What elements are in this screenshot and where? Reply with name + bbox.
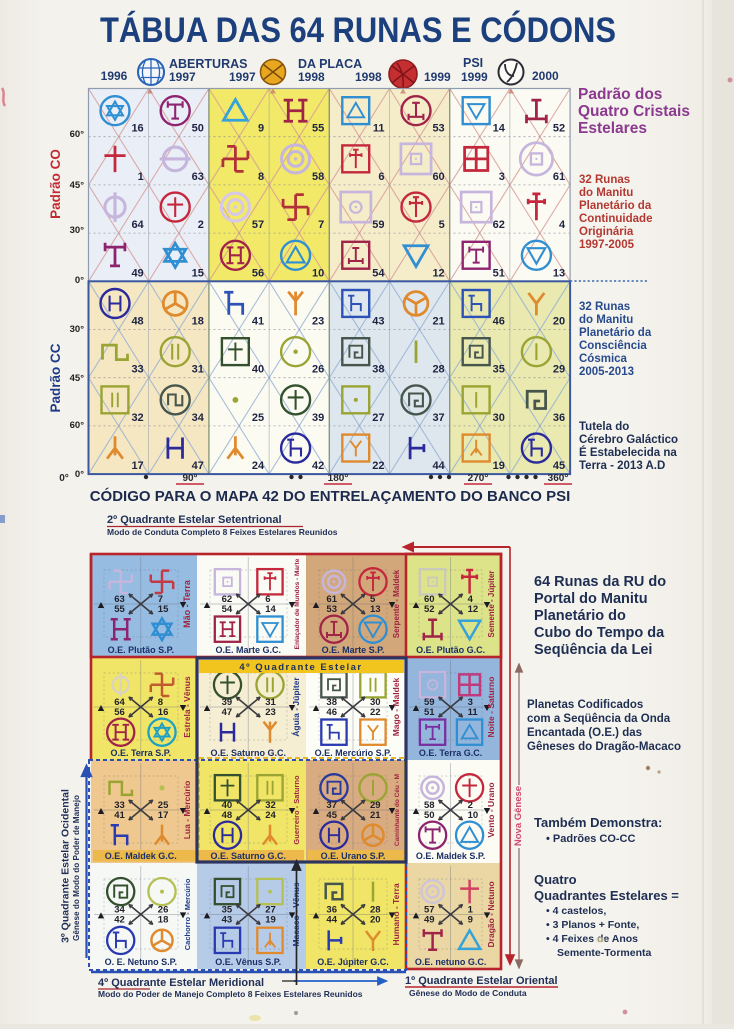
svg-text:43: 43 [222, 914, 233, 925]
svg-text:Mago - Maldek: Mago - Maldek [391, 677, 401, 736]
svg-text:24: 24 [252, 460, 265, 472]
svg-text:O.E. Urano S.P.: O.E. Urano S.P. [321, 851, 386, 861]
svg-text:7: 7 [318, 219, 324, 231]
svg-text:O.E. Terra S.P.: O.E. Terra S.P. [110, 748, 171, 758]
svg-text:64: 64 [131, 219, 144, 231]
svg-text:Modo de Conduta Completo 8 Fei: Modo de Conduta Completo 8 Feixes Estela… [107, 527, 338, 537]
svg-text:35: 35 [493, 364, 505, 376]
svg-text:45: 45 [553, 460, 565, 472]
svg-text:20: 20 [370, 914, 381, 925]
svg-text:22: 22 [370, 707, 381, 718]
svg-text:1997: 1997 [229, 70, 256, 84]
svg-text:O.E. Maldek G.C.: O.E. Maldek G.C. [105, 851, 177, 861]
svg-text:360°: 360° [548, 473, 569, 484]
svg-text:16: 16 [131, 123, 143, 135]
svg-text:30°: 30° [70, 225, 85, 236]
svg-text:36: 36 [553, 412, 565, 424]
svg-text:Cachorro - Mercúrio: Cachorro - Mercúrio [183, 878, 192, 950]
svg-text:O.E. Júpiter G.C.: O.E. Júpiter G.C. [317, 957, 389, 967]
svg-text:47: 47 [222, 707, 233, 718]
svg-text:30°: 30° [70, 324, 85, 335]
svg-text:49: 49 [131, 267, 143, 279]
svg-text:19: 19 [265, 914, 276, 925]
svg-text:Guerreiro - Saturno: Guerreiro - Saturno [292, 775, 301, 845]
svg-text:O.E. Saturno G.C.: O.E. Saturno G.C. [210, 748, 286, 758]
svg-text:40: 40 [252, 364, 264, 376]
svg-text:3: 3 [499, 171, 505, 183]
svg-text:12: 12 [432, 267, 444, 279]
svg-text:44: 44 [326, 914, 337, 925]
svg-text:11: 11 [373, 123, 385, 135]
svg-text:1º Quadrante Estelar Oriental: 1º Quadrante Estelar Oriental [405, 975, 558, 987]
svg-text:TÁBUA DAS 64 RUNAS E CÓDONS: TÁBUA DAS 64 RUNAS E CÓDONS [100, 10, 616, 50]
svg-text:Gênese do Modo do Poder de Man: Gênese do Modo do Poder de Manejo [72, 795, 81, 941]
svg-text:1998: 1998 [355, 70, 382, 84]
svg-text:Vento - Urano: Vento - Urano [486, 782, 496, 837]
svg-text:32: 32 [131, 412, 143, 424]
svg-text:23: 23 [265, 707, 276, 718]
svg-text:2000: 2000 [532, 69, 559, 83]
svg-text:O.E. netuno G.C.: O.E. netuno G.C. [415, 957, 487, 967]
svg-text:1997: 1997 [169, 70, 196, 84]
svg-text:Semente - Júpiter: Semente - Júpiter [487, 570, 496, 637]
svg-text:Padrão CO: Padrão CO [48, 149, 63, 219]
svg-text:Modo do Poder de Manejo Comple: Modo do Poder de Manejo Completo 8 Feixe… [98, 989, 363, 999]
svg-text:Estrela - Vênus: Estrela - Vênus [182, 676, 192, 738]
svg-text:42: 42 [114, 914, 125, 925]
svg-text:22: 22 [372, 460, 384, 472]
svg-text:4º Quadrante Estelar: 4º Quadrante Estelar [239, 662, 362, 673]
svg-text:63: 63 [192, 171, 204, 183]
svg-text:21: 21 [370, 810, 381, 821]
svg-text:9: 9 [468, 914, 473, 925]
svg-text:6: 6 [378, 171, 384, 183]
svg-text:11: 11 [468, 707, 479, 718]
svg-text:49: 49 [424, 914, 435, 925]
svg-text:50: 50 [424, 810, 435, 821]
svg-text:• Padrões CO-CC: • Padrões CO-CC [546, 833, 635, 845]
svg-text:43: 43 [372, 316, 384, 328]
svg-text:56: 56 [252, 267, 264, 279]
svg-text:Lua - Mercúrio: Lua - Mercúrio [182, 781, 192, 840]
svg-text:41: 41 [252, 316, 264, 328]
svg-text:13: 13 [370, 604, 381, 615]
svg-text:180°: 180° [328, 473, 349, 484]
svg-text:Águia - Júpiter: Águia - Júpiter [291, 677, 301, 737]
svg-text:5: 5 [439, 219, 445, 231]
svg-text:14: 14 [493, 123, 506, 135]
svg-text:1999: 1999 [424, 70, 451, 84]
svg-text:O.E. Vênus S.P.: O.E. Vênus S.P. [215, 957, 281, 967]
svg-text:O.E. Marte S.P.: O.E. Marte S.P. [322, 645, 385, 655]
svg-text:Noite - Saturno: Noite - Saturno [486, 677, 496, 738]
svg-text:52: 52 [553, 123, 565, 135]
svg-text:1: 1 [138, 171, 144, 183]
svg-text:O.E. Plutão S.P.: O.E. Plutão S.P. [108, 645, 174, 655]
svg-text:O.E. Saturno G.C.: O.E. Saturno G.C. [210, 851, 286, 861]
svg-text:9: 9 [258, 123, 264, 135]
svg-text:Gênese do Modo de Conduta: Gênese do Modo de Conduta [409, 988, 527, 998]
svg-text:20: 20 [553, 316, 565, 328]
svg-text:90°: 90° [182, 473, 197, 484]
svg-text:60°: 60° [70, 420, 85, 431]
svg-text:Serpente - Maldek: Serpente - Maldek [392, 569, 401, 638]
svg-text:54: 54 [372, 267, 385, 279]
svg-text:50: 50 [192, 123, 204, 135]
svg-text:Enlaçador de Mundos - Marte: Enlaçador de Mundos - Marte [294, 558, 301, 649]
svg-text:55: 55 [312, 123, 324, 135]
svg-text:Também Demonstra:: Também Demonstra: [534, 815, 662, 830]
svg-text:ABERTURAS: ABERTURAS [169, 57, 247, 71]
svg-text:18: 18 [158, 914, 169, 925]
svg-text:2: 2 [198, 219, 204, 231]
svg-text:62: 62 [493, 219, 505, 231]
svg-text:48: 48 [131, 316, 143, 328]
svg-text:PSI: PSI [463, 56, 483, 70]
svg-text:O. E. Netuno S.P.: O. E. Netuno S.P. [105, 957, 177, 967]
svg-text:Dragão - Netuno: Dragão - Netuno [486, 881, 496, 947]
svg-text:DA PLACA: DA PLACA [298, 57, 362, 71]
svg-text:26: 26 [312, 364, 324, 376]
svg-text:30: 30 [493, 412, 505, 424]
svg-text:17: 17 [158, 810, 169, 821]
svg-text:29: 29 [553, 364, 565, 376]
svg-text:45: 45 [326, 810, 337, 821]
svg-text:4º Quadrante Estelar Meridiona: 4º Quadrante Estelar Meridional [98, 977, 264, 989]
svg-text:58: 58 [312, 171, 324, 183]
svg-text:34: 34 [192, 412, 205, 424]
svg-text:Mão - Terra: Mão - Terra [182, 579, 192, 628]
svg-text:21: 21 [432, 316, 444, 328]
svg-text:53: 53 [432, 123, 444, 135]
svg-text:27: 27 [372, 412, 384, 424]
svg-text:0°: 0° [75, 275, 84, 286]
svg-text:0°: 0° [59, 473, 69, 484]
svg-text:41: 41 [114, 810, 125, 821]
svg-text:51: 51 [493, 267, 505, 279]
svg-text:Caminhante do Céu - M: Caminhante do Céu - M [394, 774, 401, 846]
svg-text:10: 10 [312, 267, 324, 279]
svg-text:17: 17 [131, 460, 143, 472]
svg-text:60°: 60° [70, 129, 85, 140]
svg-text:4: 4 [559, 219, 566, 231]
svg-text:59: 59 [372, 219, 384, 231]
svg-text:45°: 45° [70, 373, 85, 384]
svg-text:48: 48 [222, 810, 233, 821]
svg-text:19: 19 [493, 460, 505, 472]
svg-text:0°: 0° [75, 469, 84, 480]
svg-text:38: 38 [372, 364, 384, 376]
svg-text:Humano - Terra: Humano - Terra [391, 883, 401, 945]
svg-text:46: 46 [493, 316, 505, 328]
svg-text:23: 23 [312, 316, 324, 328]
svg-text:25: 25 [252, 412, 264, 424]
svg-text:56: 56 [114, 707, 125, 718]
svg-text:46: 46 [326, 707, 337, 718]
svg-text:CÓDIGO PARA O MAPA 42 DO ENTRE: CÓDIGO PARA O MAPA 42 DO ENTRELAÇAMENTO … [90, 487, 571, 505]
svg-text:28: 28 [432, 364, 444, 376]
svg-text:O.E. Maldek S.P.: O.E. Maldek S.P. [416, 851, 485, 861]
svg-text:15: 15 [192, 267, 204, 279]
svg-text:16: 16 [158, 707, 169, 718]
svg-text:33: 33 [131, 364, 143, 376]
svg-text:60: 60 [432, 171, 444, 183]
svg-text:O.E. Mercúrio S.P.: O.E. Mercúrio S.P. [315, 748, 392, 758]
svg-text:18: 18 [192, 316, 204, 328]
svg-text:1998: 1998 [298, 70, 325, 84]
svg-text:Nova Gênese: Nova Gênese [513, 786, 524, 846]
svg-text:47: 47 [192, 460, 204, 472]
svg-text:2º Quadrante Estelar Setentrio: 2º Quadrante Estelar Setentrional [107, 514, 282, 526]
svg-text:10: 10 [468, 810, 479, 821]
svg-text:57: 57 [252, 219, 264, 231]
svg-text:51: 51 [424, 707, 435, 718]
svg-text:61: 61 [553, 171, 565, 183]
svg-text:55: 55 [114, 604, 125, 615]
svg-text:13: 13 [553, 267, 565, 279]
svg-text:O.E. Plutão G.C.: O.E. Plutão G.C. [416, 645, 485, 655]
svg-text:54: 54 [222, 604, 233, 615]
svg-text:44: 44 [432, 460, 445, 472]
svg-text:14: 14 [265, 604, 276, 615]
svg-text:39: 39 [312, 412, 324, 424]
svg-text:Padrão CC: Padrão CC [48, 343, 63, 412]
svg-text:O.E. Terra G.C.: O.E. Terra G.C. [419, 748, 482, 758]
svg-text:270°: 270° [468, 473, 489, 484]
svg-text:1996: 1996 [101, 69, 128, 83]
svg-text:45°: 45° [70, 180, 85, 191]
svg-text:52: 52 [424, 604, 435, 615]
svg-text:O.E. Marte G.C.: O.E. Marte G.C. [215, 645, 281, 655]
svg-text:15: 15 [158, 604, 169, 615]
svg-text:42: 42 [312, 460, 324, 472]
svg-text:3º Quadrante Estelar Ocidental: 3º Quadrante Estelar Ocidental [60, 789, 72, 943]
svg-text:31: 31 [192, 364, 204, 376]
svg-text:37: 37 [432, 412, 444, 424]
svg-text:53: 53 [326, 604, 337, 615]
svg-text:12: 12 [468, 604, 479, 615]
svg-text:24: 24 [265, 810, 276, 821]
svg-text:1999: 1999 [461, 70, 488, 84]
svg-text:8: 8 [258, 171, 264, 183]
